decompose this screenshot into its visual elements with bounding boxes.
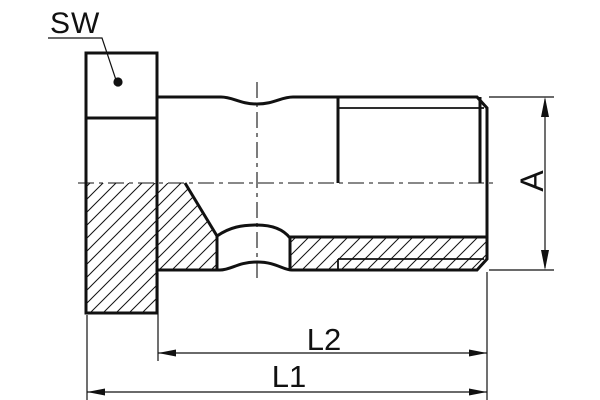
cross-hole-dome-arc — [217, 225, 290, 238]
dim-l2-label: L2 — [307, 322, 341, 357]
dim-l1-arrow-left — [87, 389, 105, 396]
sw-leader-line — [48, 38, 116, 80]
technical-drawing: SW A L2 L1 — [0, 0, 600, 400]
dim-l1-label: L1 — [272, 359, 306, 394]
dim-l2-arrow-right — [469, 350, 487, 357]
dim-l2-arrow-left — [158, 350, 176, 357]
sw-label: SW — [50, 7, 100, 40]
section-hatch-threaded-wall — [290, 237, 487, 270]
sw-leader-dot — [113, 77, 122, 86]
dim-a-label: A — [514, 170, 550, 192]
dim-l1-arrow-right — [469, 389, 487, 396]
dim-a-arrow-top — [541, 97, 549, 117]
dim-a-arrow-bottom — [541, 250, 549, 270]
